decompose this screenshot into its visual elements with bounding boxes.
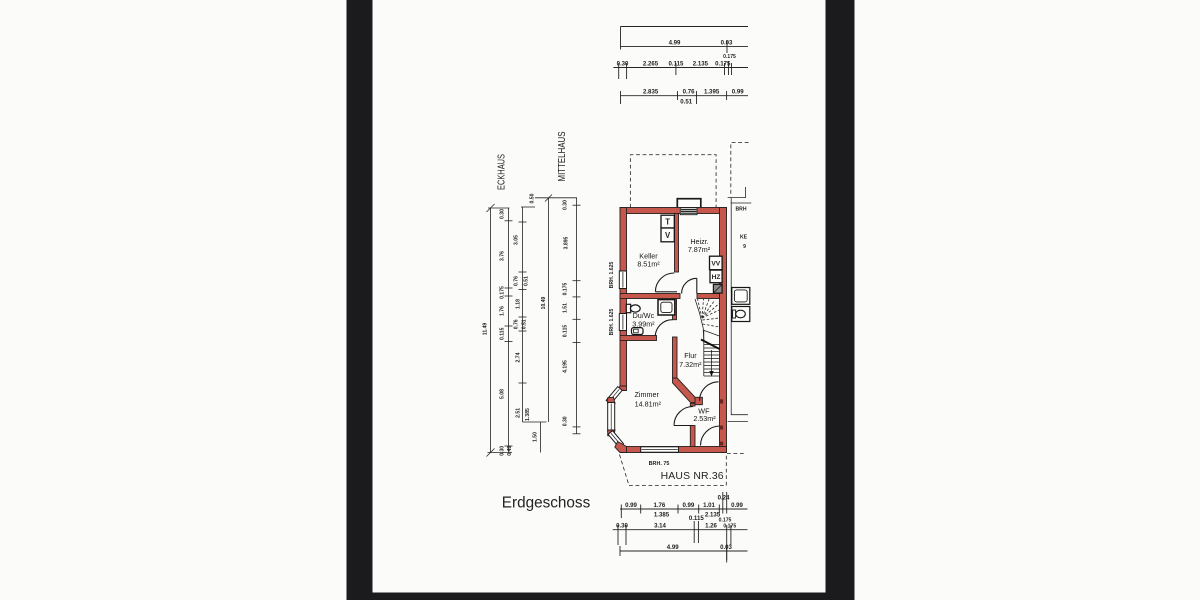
svg-text:0.115: 0.115 — [500, 327, 506, 340]
svg-text:2.265: 2.265 — [643, 61, 659, 68]
svg-text:0.115: 0.115 — [669, 61, 685, 68]
svg-text:2.135: 2.135 — [693, 61, 709, 68]
svg-text:0.175: 0.175 — [723, 54, 736, 60]
svg-text:0.175: 0.175 — [500, 286, 506, 299]
svg-text:1.18: 1.18 — [516, 299, 522, 309]
svg-text:0.03: 0.03 — [721, 39, 733, 46]
svg-text:1.395: 1.395 — [704, 89, 720, 96]
svg-text:HZ: HZ — [712, 274, 721, 281]
svg-text:3.14: 3.14 — [654, 523, 666, 530]
svg-text:VV: VV — [711, 261, 720, 268]
svg-text:2.835: 2.835 — [643, 89, 659, 96]
svg-text:0.30: 0.30 — [500, 446, 506, 456]
svg-text:BRH: BRH — [735, 206, 746, 212]
svg-text:3.05: 3.05 — [514, 235, 520, 245]
svg-text:0.49: 0.49 — [507, 446, 513, 456]
svg-text:0.51: 0.51 — [680, 99, 692, 106]
svg-text:1.76: 1.76 — [500, 306, 506, 316]
svg-text:10.49: 10.49 — [541, 296, 547, 309]
svg-text:0.175: 0.175 — [563, 282, 569, 295]
svg-text:3.76: 3.76 — [500, 251, 506, 261]
svg-text:0.30: 0.30 — [500, 209, 506, 219]
svg-text:KE: KE — [740, 235, 748, 241]
svg-text:7.32m²: 7.32m² — [679, 360, 702, 369]
svg-text:5.08: 5.08 — [500, 389, 506, 399]
svg-text:0.76: 0.76 — [514, 276, 520, 286]
svg-text:BRH. 1.625: BRH. 1.625 — [609, 309, 615, 336]
svg-text:0.99: 0.99 — [732, 89, 744, 96]
svg-text:1.385: 1.385 — [654, 511, 670, 518]
svg-text:11.49: 11.49 — [483, 323, 489, 336]
svg-text:0.175: 0.175 — [715, 61, 731, 68]
svg-text:0.99: 0.99 — [731, 502, 743, 509]
svg-text:0.30: 0.30 — [617, 61, 629, 68]
svg-text:2.51: 2.51 — [516, 408, 522, 418]
svg-text:0.50: 0.50 — [530, 193, 536, 203]
svg-text:0.115: 0.115 — [689, 515, 705, 522]
svg-text:0.175: 0.175 — [723, 524, 736, 530]
svg-text:8.51m²: 8.51m² — [637, 260, 660, 269]
svg-text:1.26: 1.26 — [705, 523, 717, 530]
svg-text:ECKHAUS: ECKHAUS — [497, 154, 508, 190]
svg-text:1.51: 1.51 — [563, 303, 569, 313]
svg-text:0.99: 0.99 — [682, 502, 694, 509]
svg-text:0.115: 0.115 — [563, 325, 569, 338]
svg-text:0.99: 0.99 — [625, 502, 637, 509]
svg-text:Zimmer: Zimmer — [635, 390, 660, 399]
svg-text:0.30: 0.30 — [563, 200, 569, 210]
svg-text:1.385: 1.385 — [525, 408, 531, 421]
svg-text:7.87m²: 7.87m² — [688, 245, 711, 254]
svg-text:HAUS NR.36: HAUS NR.36 — [661, 471, 724, 482]
svg-text:Erdgeschoss: Erdgeschoss — [502, 494, 591, 511]
svg-text:V: V — [665, 231, 671, 240]
svg-text:BRH. 1.625: BRH. 1.625 — [609, 262, 615, 289]
svg-text:0.30: 0.30 — [563, 416, 569, 426]
svg-text:4.195: 4.195 — [563, 360, 569, 373]
svg-text:BRH. 75: BRH. 75 — [649, 461, 670, 467]
svg-text:0.76: 0.76 — [514, 319, 520, 329]
svg-text:4.99: 4.99 — [667, 544, 679, 551]
svg-text:T: T — [665, 217, 670, 226]
svg-text:1.76: 1.76 — [653, 502, 665, 509]
svg-text:9: 9 — [743, 244, 746, 250]
svg-text:Flur: Flur — [684, 351, 697, 360]
svg-text:4.99: 4.99 — [669, 39, 681, 46]
svg-text:0.175: 0.175 — [719, 517, 732, 523]
svg-text:3.99m²: 3.99m² — [632, 319, 655, 328]
svg-text:0.76: 0.76 — [683, 89, 695, 96]
svg-text:0.51: 0.51 — [524, 276, 530, 286]
svg-text:2.53m²: 2.53m² — [693, 414, 716, 423]
svg-text:14.81m²: 14.81m² — [635, 400, 662, 409]
svg-text:0.51: 0.51 — [522, 319, 528, 329]
svg-text:0.03: 0.03 — [720, 544, 732, 551]
svg-text:0.30: 0.30 — [616, 523, 628, 530]
svg-text:0.24: 0.24 — [718, 495, 730, 502]
svg-text:MITTELHAUS: MITTELHAUS — [557, 131, 568, 181]
svg-text:1.01: 1.01 — [703, 502, 715, 509]
svg-text:3.895: 3.895 — [564, 236, 570, 249]
svg-text:1.50: 1.50 — [533, 432, 539, 442]
svg-text:2.74: 2.74 — [516, 352, 522, 362]
